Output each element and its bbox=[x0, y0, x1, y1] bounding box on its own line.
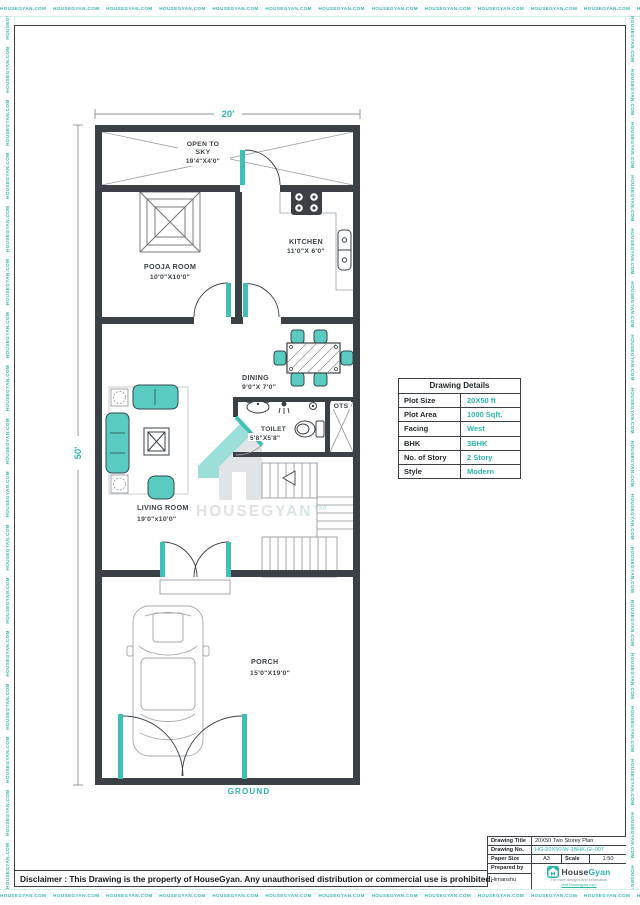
gate-post-right bbox=[242, 714, 247, 779]
disclaimer-text: Disclaimer : This Drawing is the propert… bbox=[14, 870, 488, 887]
title-block-row: Drawing Title 20X50 Two Storey Plan bbox=[488, 837, 626, 846]
gate-post-left bbox=[118, 714, 123, 779]
scale-label: Scale bbox=[562, 855, 590, 863]
room-size-toilet: 5'8"X5'8" bbox=[250, 435, 280, 442]
room-label-toilet: TOILET bbox=[261, 426, 286, 433]
pooja-door bbox=[226, 283, 231, 317]
room-label-porch: PORCH bbox=[251, 657, 278, 666]
room-label-ots: OTS bbox=[334, 403, 349, 410]
title-block-row: Paper Size A3 Scale 1:50 bbox=[488, 855, 626, 864]
title-block: Drawing Title 20X50 Two Storey Plan Draw… bbox=[487, 836, 626, 887]
table-row: Facing West bbox=[399, 422, 520, 436]
drawing-details-table: Drawing Details Plot Size 20X50 ft Plot … bbox=[398, 378, 521, 479]
brand-tagline: For more designs and information visit H… bbox=[551, 878, 608, 887]
detail-value: Modern bbox=[461, 465, 520, 478]
detail-label: BHK bbox=[399, 437, 461, 450]
detail-value: 1000 Sqft. bbox=[461, 408, 520, 421]
detail-label: Style bbox=[399, 465, 461, 478]
title-block-bottom: Prepared by Himanshu HouseGyan bbox=[488, 864, 626, 889]
wc-icon bbox=[295, 421, 324, 437]
brand-name: HouseGyan bbox=[561, 867, 610, 877]
main-door-left bbox=[160, 542, 165, 577]
dim-width-label: 20' bbox=[222, 109, 235, 120]
dim-depth-label: 50' bbox=[73, 447, 84, 460]
room-size-kitchen: 11'0"X 6'0" bbox=[287, 248, 325, 255]
details-title: Drawing Details bbox=[399, 379, 520, 394]
prepared-by-value: Himanshu bbox=[488, 874, 531, 889]
stair-direction-arrow bbox=[283, 471, 295, 485]
main-door-right bbox=[226, 542, 231, 577]
detail-label: No. of Story bbox=[399, 451, 461, 464]
table-row: Plot Area 1000 Sqft. bbox=[399, 408, 520, 422]
paper-size-value: A3 bbox=[532, 855, 562, 863]
title-block-row: Drawing No. HG-20X50-W-3BHK-GI-007 bbox=[488, 846, 626, 855]
drawing-no-label: Drawing No. bbox=[488, 846, 532, 854]
mandir-symbol bbox=[140, 192, 200, 252]
center-table bbox=[144, 428, 169, 455]
drawing-title-label: Drawing Title bbox=[488, 837, 532, 845]
room-label-living: LIVING ROOM bbox=[137, 503, 189, 512]
room-size-open-to-sky: 19'4"X4'0" bbox=[186, 158, 220, 165]
detail-value: 20X50 ft bbox=[461, 394, 520, 407]
kitchen-door bbox=[240, 150, 245, 185]
housegyan-logo: HouseGyan For more designs and informati… bbox=[532, 864, 626, 889]
prepared-by-label: Prepared by bbox=[488, 864, 531, 874]
room-label-dining: DINING bbox=[242, 373, 269, 382]
table-row: Style Modern bbox=[399, 465, 520, 478]
staircase bbox=[262, 463, 353, 577]
table-row: Plot Size 20X50 ft bbox=[399, 394, 520, 408]
table-row: BHK 3BHK bbox=[399, 437, 520, 451]
detail-label: Plot Size bbox=[399, 394, 461, 407]
detail-value: 2 Story bbox=[461, 451, 520, 464]
washbasin-icon bbox=[247, 401, 269, 413]
scale-value: 1:50 bbox=[590, 855, 626, 863]
paper-size-label: Paper Size bbox=[488, 855, 532, 863]
housegyan-house-icon bbox=[547, 866, 559, 878]
room-label-open-to-sky-2: SKY bbox=[196, 149, 211, 156]
room-label-pooja: POOJA ROOM bbox=[144, 262, 196, 271]
drawing-no-value: HG-20X50-W-3BHK-GI-007 bbox=[532, 846, 626, 854]
room-label-kitchen: KITCHEN bbox=[289, 237, 323, 246]
detail-value: 3BHK bbox=[461, 437, 520, 450]
floor-plan: HOUSEGYAN™ 20' 50' bbox=[0, 0, 640, 905]
room-size-dining: 9'0"X 7'0" bbox=[242, 384, 276, 391]
hall-door bbox=[243, 283, 248, 317]
dining-table bbox=[287, 343, 340, 373]
room-size-pooja: 10'0"X10'0" bbox=[150, 274, 190, 281]
entry-step bbox=[160, 580, 230, 594]
room-size-porch: 15'0"X19'0" bbox=[250, 670, 290, 677]
detail-value: West bbox=[461, 422, 520, 435]
room-label-open-to-sky-1: OPEN TO bbox=[187, 141, 220, 148]
floor-drain-icon bbox=[310, 403, 317, 410]
stove-icon bbox=[291, 189, 322, 215]
drawing-title-value: 20X50 Two Storey Plan bbox=[532, 837, 626, 845]
sink-icon bbox=[338, 230, 351, 270]
table-row: No. of Story 2 Story bbox=[399, 451, 520, 465]
watermark-text: HOUSEGYAN™ bbox=[196, 503, 330, 520]
detail-label: Facing bbox=[399, 422, 461, 435]
detail-label: Plot Area bbox=[399, 408, 461, 421]
drawing-sheet: HOUSEGYAN.COM HOUSEGYAN.COM HOUSEGYAN.CO… bbox=[0, 0, 640, 905]
car-icon bbox=[127, 606, 209, 756]
ground-label: GROUND bbox=[228, 787, 271, 796]
room-size-living: 19'0"x10'0" bbox=[137, 516, 176, 523]
